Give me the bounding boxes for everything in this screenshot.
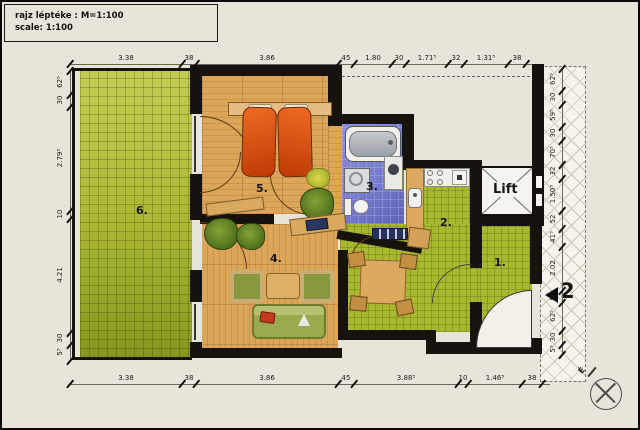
dim-label: 1.80 — [365, 54, 381, 62]
lift-door-mark — [536, 176, 542, 188]
dim-label: 62⁵ — [549, 310, 557, 322]
wall — [338, 250, 348, 340]
plant-icon — [204, 218, 238, 250]
dimension-line — [70, 384, 550, 385]
dim-label: 3.86 — [259, 374, 275, 382]
dim-label: 45 — [342, 374, 351, 382]
lift-label: Lift — [491, 182, 520, 197]
dim-label: 30 — [56, 96, 64, 105]
dim-label: 2.02 — [549, 260, 557, 276]
wall — [470, 226, 482, 268]
lamp-icon — [298, 314, 310, 326]
dim-label: 5⁵ — [56, 348, 64, 355]
plant-icon — [236, 223, 265, 250]
chair-icon — [349, 295, 367, 312]
balcony-edge — [75, 357, 192, 360]
dim-label: 38 — [528, 374, 537, 382]
dim-label: 3.38 — [118, 374, 134, 382]
dim-label: 10 — [56, 210, 64, 219]
dim-label: 59⁵ — [549, 109, 557, 121]
dim-label: 30 — [549, 333, 557, 342]
washing-machine-door — [349, 172, 363, 186]
toilet-tank — [344, 198, 352, 216]
room-label-3: 3. — [366, 180, 378, 193]
dim-label: 38 — [185, 374, 194, 382]
room-label-6: 6. — [136, 204, 148, 217]
burner-icon — [427, 179, 433, 185]
shelf-icon — [407, 227, 432, 250]
drain-icon — [388, 140, 393, 145]
dim-label: 10 — [459, 374, 468, 382]
armchair-icon — [230, 270, 264, 303]
dim-label: 45 — [342, 54, 351, 62]
building-outline-dashed — [342, 76, 540, 77]
dim-label: 62⁵ — [56, 76, 64, 88]
toilet-icon — [353, 199, 369, 214]
wall — [190, 270, 202, 302]
room-label-2: 2. — [440, 216, 452, 229]
wall — [190, 64, 202, 114]
cushion-icon — [259, 311, 276, 324]
dim-label: 1.46⁵ — [486, 374, 504, 382]
balcony-edge — [75, 68, 192, 71]
dim-label: 62⁵ — [549, 73, 557, 85]
dim-label: 5⁵ — [549, 345, 557, 352]
wall — [470, 216, 542, 226]
kitchen-sink-icon — [408, 188, 422, 208]
bed-icon — [241, 107, 277, 178]
window-frame — [194, 304, 196, 340]
dim-label: 2.79⁵ — [56, 149, 64, 167]
dim-label: 38 — [513, 54, 522, 62]
burner-icon — [427, 170, 433, 176]
burner-icon — [437, 170, 443, 176]
dim-tick — [66, 356, 74, 365]
dim-label: 1.71⁵ — [418, 54, 436, 62]
dim-label: 1.31⁵ — [477, 54, 495, 62]
dim-label: 41⁵ — [549, 231, 557, 243]
lift-door-mark — [536, 194, 542, 206]
room-label-1: 1. — [494, 256, 506, 269]
chair-icon — [399, 253, 418, 270]
dim-label: 3.88⁵ — [397, 374, 415, 382]
wall — [190, 342, 202, 358]
bed-icon — [277, 107, 313, 178]
room-label-5: 5. — [256, 182, 268, 195]
room-label-4: 4. — [270, 252, 282, 265]
dim-label: 1.50⁵ — [549, 185, 557, 203]
dim-label: 32 — [549, 167, 557, 176]
faucet-icon — [413, 193, 417, 197]
sink-bowl — [388, 164, 399, 175]
oven-knob — [457, 175, 462, 180]
dim-label: 30 — [56, 334, 64, 343]
dim-label: 52 — [549, 215, 557, 224]
north-arrow — [587, 367, 596, 377]
dim-label: 30 — [549, 93, 557, 102]
window-frame — [194, 116, 196, 172]
wall — [190, 64, 342, 76]
dim-label: 3.86 — [259, 54, 275, 62]
dim-label: 30 — [395, 54, 404, 62]
doormat-icon — [372, 228, 408, 240]
plant-icon — [306, 168, 330, 188]
coffee-table-icon — [266, 273, 300, 299]
dim-label: 38 — [185, 54, 194, 62]
armchair-icon — [300, 270, 334, 303]
outdoor-walkway — [540, 66, 586, 382]
title-block: rajz léptéke : M=1:100 scale: 1:100 — [4, 4, 218, 42]
scale-line-hu: rajz léptéke : M=1:100 — [15, 10, 217, 22]
dim-label: 30 — [549, 129, 557, 138]
dim-label: 70⁵ — [549, 146, 557, 158]
wall — [530, 226, 542, 284]
dim-label: 32 — [452, 54, 461, 62]
dim-label: 4.21 — [56, 267, 64, 283]
wall — [338, 330, 434, 340]
wall — [334, 114, 410, 124]
scale-line-en: scale: 1:100 — [15, 22, 217, 34]
dim-label: 50 — [549, 292, 557, 301]
floor-plan-canvas: rajz léptéke : M=1:100 scale: 1:100 — [0, 0, 640, 430]
dim-label: 3.38 — [118, 54, 134, 62]
wall — [190, 348, 342, 358]
burner-icon — [437, 179, 443, 185]
chair-icon — [347, 251, 366, 268]
